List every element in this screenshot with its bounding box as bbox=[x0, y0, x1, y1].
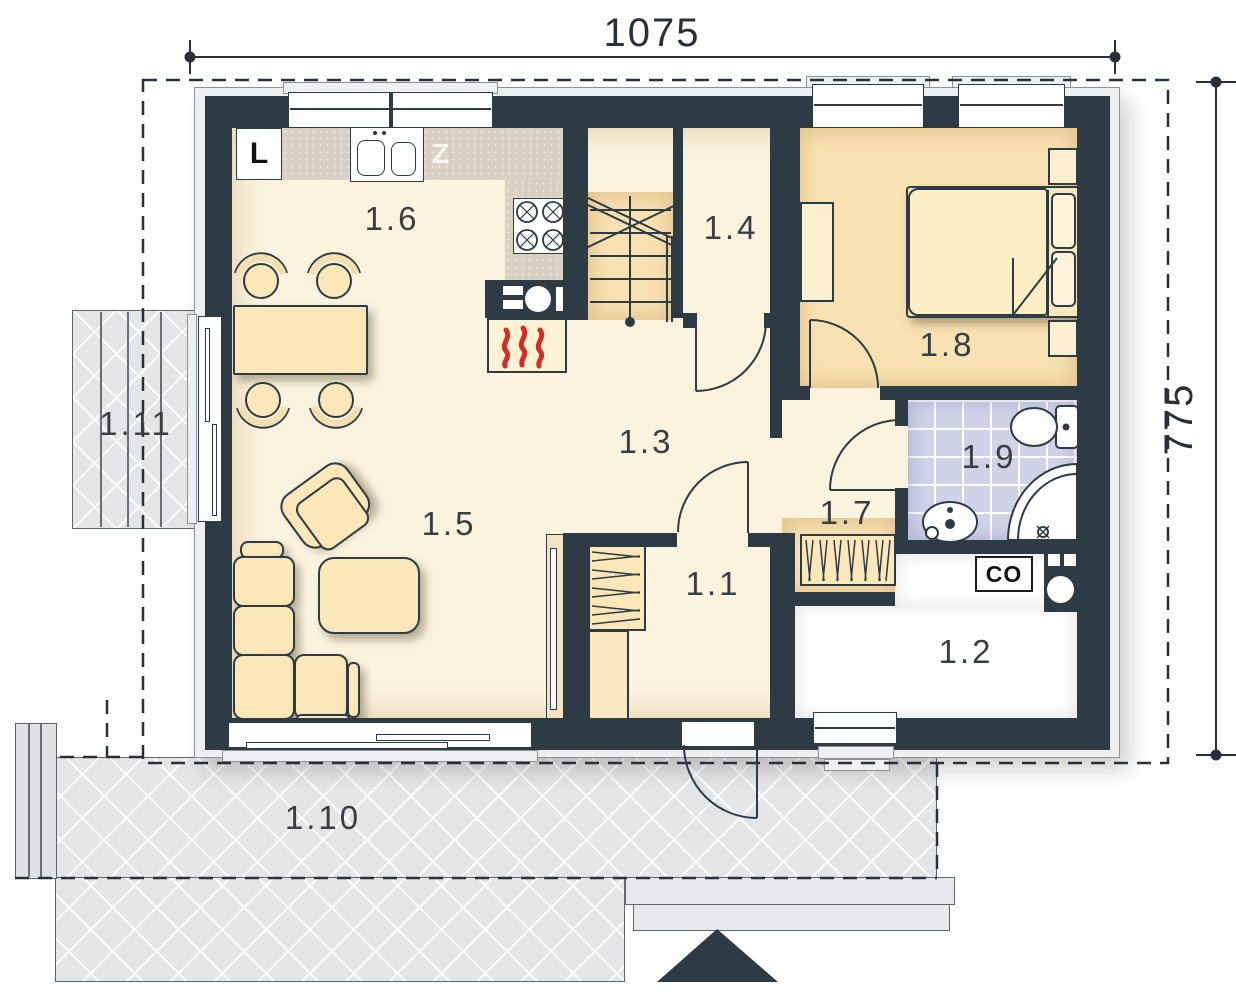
chair bbox=[246, 383, 280, 417]
washbasin bbox=[923, 502, 977, 542]
corner-shower bbox=[1008, 464, 1077, 540]
room-label-1-4: 1.4 bbox=[704, 209, 759, 247]
closet-hangers bbox=[806, 540, 890, 581]
door-bathroom bbox=[830, 420, 900, 490]
room-label-1-8: 1.8 bbox=[920, 326, 975, 364]
room-label-1-3: 1.3 bbox=[619, 423, 674, 461]
room-label-1-2: 1.2 bbox=[939, 633, 994, 671]
room-label-1-7: 1.7 bbox=[820, 494, 875, 532]
door-vestibule-exit bbox=[684, 745, 757, 818]
dining-chairs bbox=[235, 253, 362, 427]
dimension-right-value: 775 bbox=[1157, 383, 1201, 456]
room-label-1-1: 1.1 bbox=[686, 565, 741, 603]
stove-burners bbox=[517, 202, 563, 250]
fireplace-flames bbox=[504, 328, 541, 366]
room-label-1-5: 1.5 bbox=[422, 505, 477, 543]
floor-plan: L Z CO bbox=[0, 0, 1236, 1000]
chair bbox=[244, 264, 278, 298]
stairs bbox=[586, 196, 678, 326]
hall-wardrobe-hangers bbox=[592, 552, 640, 624]
room-label-1-11: 1.11 bbox=[99, 405, 173, 443]
toilet bbox=[1011, 406, 1078, 448]
chair bbox=[317, 264, 351, 298]
room-label-1-6: 1.6 bbox=[365, 200, 420, 238]
door-bedroom bbox=[810, 320, 878, 388]
door-hall-vestibule bbox=[678, 462, 748, 533]
bed-fold-lines bbox=[1013, 190, 1057, 316]
room-label-1-9: 1.9 bbox=[962, 438, 1017, 476]
entrance-marker-triangle bbox=[657, 929, 778, 982]
linework-overlay: 1075 775 bbox=[0, 0, 1236, 1000]
dimension-top-value: 1075 bbox=[604, 11, 701, 55]
chair bbox=[319, 383, 353, 417]
door-room14 bbox=[696, 321, 766, 391]
room-label-1-10: 1.10 bbox=[285, 799, 361, 837]
